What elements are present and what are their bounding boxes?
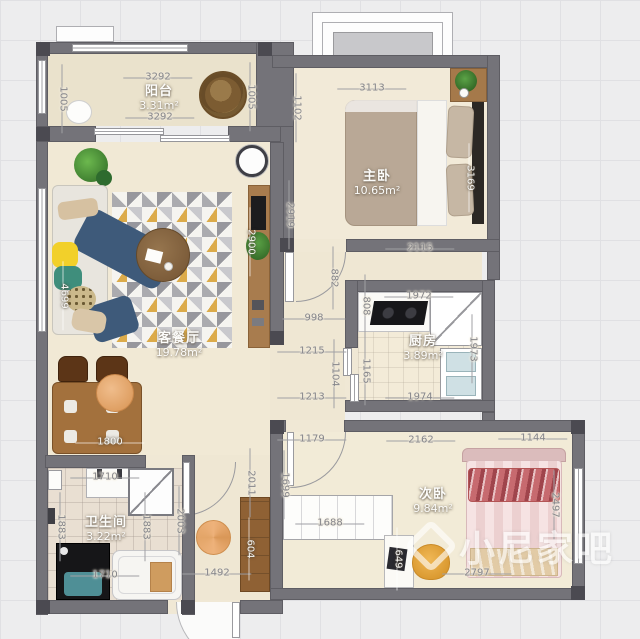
room-label-living: 客餐厅 19.78m² xyxy=(156,327,203,359)
balcony-area: 3.31m² xyxy=(139,99,179,112)
balcony-name: 阳台 xyxy=(139,80,179,99)
dim-kitchen-right: 1973 xyxy=(468,336,479,361)
dim-hall-mid1: 1215 xyxy=(299,346,324,357)
second-name: 次卧 xyxy=(413,483,453,502)
bath-area: 3.22m² xyxy=(85,530,127,543)
corner-block xyxy=(280,238,294,252)
wall-kitchen-left-a xyxy=(345,280,358,348)
second-door-gap xyxy=(286,420,344,432)
dim-dining: 1800 xyxy=(97,437,122,448)
round-stool xyxy=(196,520,231,555)
coffee-table-cup xyxy=(164,262,173,271)
toilet xyxy=(48,470,62,490)
wall-second-bottom xyxy=(270,588,585,600)
room-label-bath: 卫生间 3.22m² xyxy=(85,511,127,543)
corner-block xyxy=(571,420,585,434)
dim-desk: 649 xyxy=(393,549,404,568)
dim-living-left: 4699 xyxy=(59,283,70,308)
watermark: 小尼家吧 xyxy=(412,520,615,572)
dim-master-top: 3113 xyxy=(359,83,384,94)
corner-block xyxy=(36,127,50,141)
master-bed-fold xyxy=(345,100,417,112)
dim-bath-left: 1883 xyxy=(56,514,67,539)
master-bed-sheet xyxy=(417,100,447,226)
dim-second-top-right: 1144 xyxy=(520,433,545,444)
exterior-sill xyxy=(56,26,114,42)
dim-bath-top: 1710 xyxy=(92,472,117,483)
dining-chair-round xyxy=(96,374,134,412)
dim-hall-lower: 2011 xyxy=(246,470,257,495)
dim-master-bottom: 2115 xyxy=(407,243,432,254)
dim-second-right: 2497 xyxy=(550,492,561,517)
dim-balcony-left: 1005 xyxy=(58,86,69,111)
dim-hall-mid2: 1104 xyxy=(330,361,341,386)
wall-second-left xyxy=(270,432,283,600)
tv xyxy=(251,196,266,230)
bath-caddy xyxy=(150,562,172,592)
master-door-gap xyxy=(294,239,346,252)
dim-master-right: 3169 xyxy=(465,165,476,190)
dim-hall-upper: 882 xyxy=(329,268,340,287)
kitchen-door-panel xyxy=(350,374,359,402)
dim-kitchen-top: 1972 xyxy=(406,291,431,302)
corner-block xyxy=(571,586,585,600)
round-rattan-rug xyxy=(199,71,247,119)
kitchen-door-panel xyxy=(343,348,352,376)
living-name: 客餐厅 xyxy=(156,327,203,346)
corner-block xyxy=(36,600,50,614)
wall-bath-top-a xyxy=(45,455,146,468)
cabinet-item xyxy=(252,300,264,310)
master-door-leaf xyxy=(285,252,294,302)
dim-wardrobe: 1688 xyxy=(317,518,342,529)
dim-entry: 1492 xyxy=(204,568,229,579)
plate xyxy=(64,400,77,413)
master-pillow xyxy=(446,105,475,158)
master-name: 主卧 xyxy=(354,165,401,184)
bath-name: 卫生间 xyxy=(85,511,127,530)
dim-kitchen-left-lower: 1165 xyxy=(361,358,372,383)
stove xyxy=(370,301,428,325)
balcony-basin xyxy=(66,100,92,124)
bath-door-leaf xyxy=(183,462,190,514)
balcony-side-window xyxy=(38,60,46,114)
living-area: 19.78m² xyxy=(156,346,203,359)
dim-corridor: 2003 xyxy=(175,508,186,533)
second-bed-pillow-band xyxy=(468,468,560,502)
sliding-door-panel xyxy=(94,128,164,135)
dim-living-right: 2900 xyxy=(246,229,257,254)
kitchen-name: 厨房 xyxy=(403,330,443,349)
second-area: 9.84m² xyxy=(413,502,453,515)
dim-second-left: 1699 xyxy=(280,472,291,497)
dim-hall-mid3: 1213 xyxy=(299,392,324,403)
wall-lamp-circle xyxy=(236,145,268,177)
entry-door-leaf xyxy=(232,602,240,638)
coffee-table xyxy=(136,228,190,282)
corner-block xyxy=(270,420,284,434)
wall-hook xyxy=(48,508,55,524)
dim-balcony-right: 1005 xyxy=(246,84,257,109)
corner-block xyxy=(258,42,272,56)
wall-second-top-b xyxy=(344,420,585,432)
dim-entry-cabinet: 604 xyxy=(245,539,256,558)
living-side-window xyxy=(38,188,46,332)
dim-bath-right: 1883 xyxy=(141,514,152,539)
room-label-second: 次卧 9.84m² xyxy=(413,483,453,515)
watermark-text: 小尼家吧 xyxy=(459,520,615,572)
dim-kitchen-left-upper: 808 xyxy=(361,296,372,315)
pillow-yellow xyxy=(52,242,78,268)
balcony-window xyxy=(72,44,188,52)
dim-master-left-lower: 2919 xyxy=(285,202,296,227)
dim-bath-bottom: 1710 xyxy=(92,570,117,581)
wall-bottom-left xyxy=(36,600,168,614)
dim-hall-door: 998 xyxy=(304,313,323,324)
floor-plan: 3292 3292 1005 1005 3113 1102 2919 3169 … xyxy=(0,0,640,639)
plant-small xyxy=(96,170,112,186)
master-bed-blanket xyxy=(345,100,417,226)
dim-kitchen-bottom: 1974 xyxy=(407,392,432,403)
watermark-logo-icon xyxy=(404,519,458,573)
kitchen-area: 3.89m² xyxy=(403,349,443,362)
dim-second-top-left: 1179 xyxy=(299,434,324,445)
dim-master-left-upper: 1102 xyxy=(292,95,303,120)
wall-bottom-entry-right xyxy=(240,600,283,614)
dim-balcony-bottom: 3292 xyxy=(147,112,172,123)
corner-block xyxy=(36,42,50,56)
master-area: 10.65m² xyxy=(354,184,401,197)
corner-block xyxy=(181,600,195,614)
sliding-door-panel xyxy=(160,135,230,142)
room-label-master: 主卧 10.65m² xyxy=(354,165,401,197)
washing-machine-knob xyxy=(60,547,68,555)
wall-kitchen-right xyxy=(482,280,495,412)
nightstand-lamp xyxy=(459,88,469,98)
dining-chair xyxy=(58,356,88,382)
room-label-balcony: 阳台 3.31m² xyxy=(139,80,179,112)
wall-master-top xyxy=(272,55,500,68)
shower-enclosure xyxy=(128,468,174,516)
room-label-kitchen: 厨房 3.89m² xyxy=(403,330,443,362)
cabinet-item xyxy=(252,318,264,326)
bath-door-gap xyxy=(146,455,182,468)
dim-second-top: 2162 xyxy=(408,435,433,446)
corner-block xyxy=(270,331,284,345)
